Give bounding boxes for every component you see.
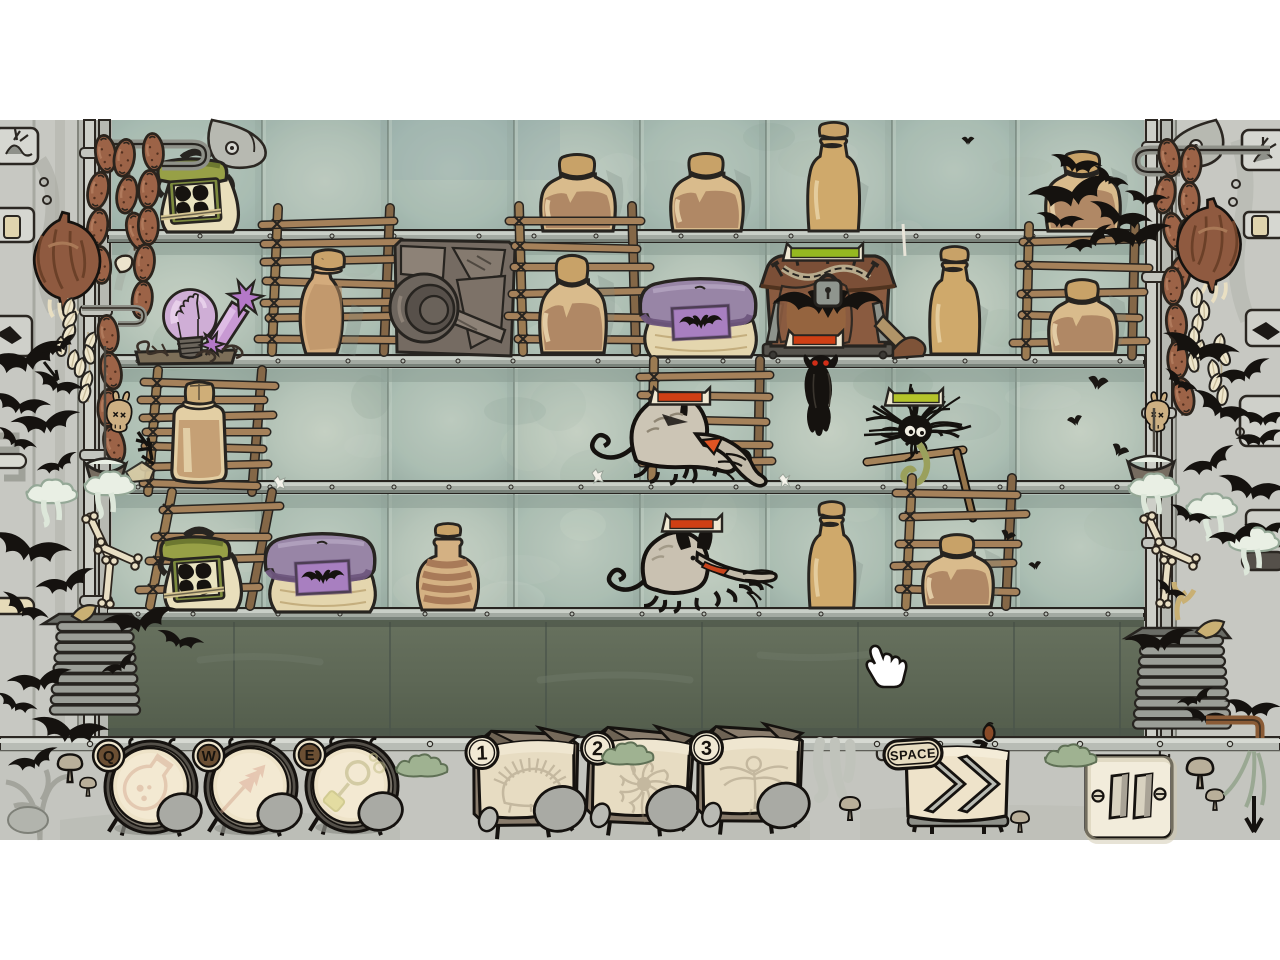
svg-text:W: W <box>202 748 217 765</box>
svg-text:1: 1 <box>476 742 488 764</box>
svg-text:E: E <box>305 747 315 764</box>
svg-text:Q: Q <box>103 748 115 765</box>
svg-text:3: 3 <box>701 738 713 760</box>
